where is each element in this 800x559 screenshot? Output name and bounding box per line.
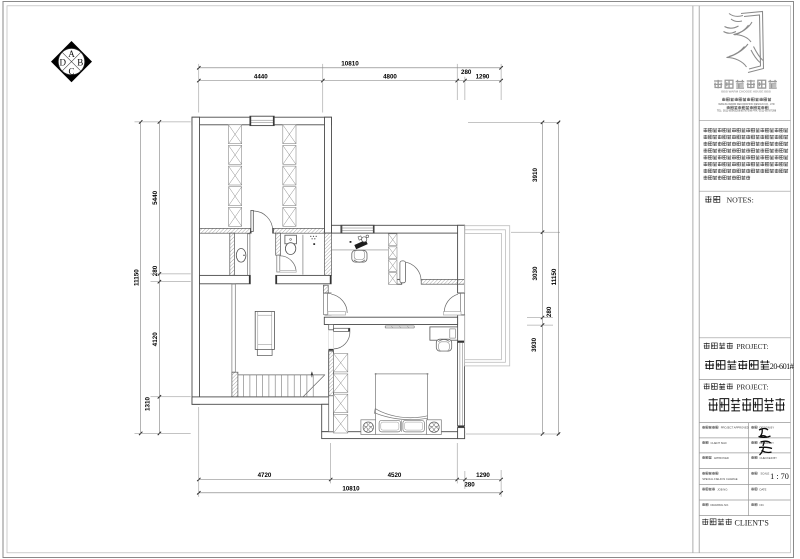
svg-text:TEL: 0511-85963208/85787398: TEL: 0511-85963208/85787398 FAX: 0511-85… bbox=[717, 110, 777, 113]
svg-text:DRAWING NO.: DRAWING NO. bbox=[711, 503, 730, 507]
svg-text:DATE: DATE bbox=[760, 488, 767, 492]
svg-text:280: 280 bbox=[461, 69, 472, 76]
svg-text:PROJECT:: PROJECT: bbox=[737, 343, 769, 351]
svg-text:4440: 4440 bbox=[254, 73, 268, 80]
svg-text:280: 280 bbox=[546, 306, 553, 317]
svg-text:4120: 4120 bbox=[152, 332, 159, 347]
svg-text:PROJECT APPROVED: PROJECT APPROVED bbox=[721, 426, 749, 430]
svg-text:A: A bbox=[68, 49, 75, 59]
svg-text:D: D bbox=[60, 57, 67, 67]
svg-text:4720: 4720 bbox=[258, 472, 272, 479]
svg-text:NOTES:: NOTES: bbox=[727, 196, 754, 205]
svg-text:JOB NO.: JOB NO. bbox=[717, 488, 728, 492]
svg-text:4520: 4520 bbox=[388, 472, 402, 479]
svg-text:1290: 1290 bbox=[476, 73, 490, 80]
svg-text:3930: 3930 bbox=[531, 337, 538, 352]
svg-text:4800: 4800 bbox=[383, 73, 397, 80]
svg-text:1 : 70: 1 : 70 bbox=[770, 472, 789, 481]
svg-text:SPECIAL FIELD IN CHARGE: SPECIAL FIELD IN CHARGE bbox=[702, 477, 738, 481]
svg-text:3910: 3910 bbox=[532, 168, 539, 183]
svg-text:WANJIA WARM DECORATION DESIGN: WANJIA WARM DECORATION DESIGN CO., LTD bbox=[718, 103, 774, 106]
svg-text:CLIENT SGD: CLIENT SGD bbox=[711, 441, 727, 445]
svg-text:10810: 10810 bbox=[341, 61, 359, 68]
svg-text:3030: 3030 bbox=[532, 266, 539, 281]
svg-text:CLIENT'S: CLIENT'S bbox=[735, 519, 769, 528]
svg-text:20-601#: 20-601# bbox=[770, 362, 794, 371]
svg-text:B: B bbox=[77, 57, 83, 67]
svg-text:NO.: NO. bbox=[760, 503, 765, 507]
svg-text:10810: 10810 bbox=[342, 486, 360, 493]
svg-text:280: 280 bbox=[152, 265, 159, 276]
svg-text:11150: 11150 bbox=[134, 269, 141, 286]
svg-text:PROJECT:: PROJECT: bbox=[737, 383, 769, 391]
svg-text:CHECKED BY: CHECKED BY bbox=[760, 456, 778, 460]
svg-text:APPROVED: APPROVED bbox=[714, 456, 729, 460]
svg-text:1310: 1310 bbox=[144, 397, 151, 412]
svg-text:1290: 1290 bbox=[476, 472, 490, 479]
svg-text:11150: 11150 bbox=[551, 268, 558, 285]
svg-text:BBB WARM CHOOSE HOUSE BBB: BBB WARM CHOOSE HOUSE BBB bbox=[721, 90, 771, 94]
svg-text:5440: 5440 bbox=[152, 190, 159, 205]
svg-text:C: C bbox=[68, 67, 74, 77]
svg-text:280: 280 bbox=[464, 481, 475, 488]
svg-text:SCALE: SCALE bbox=[761, 472, 770, 476]
